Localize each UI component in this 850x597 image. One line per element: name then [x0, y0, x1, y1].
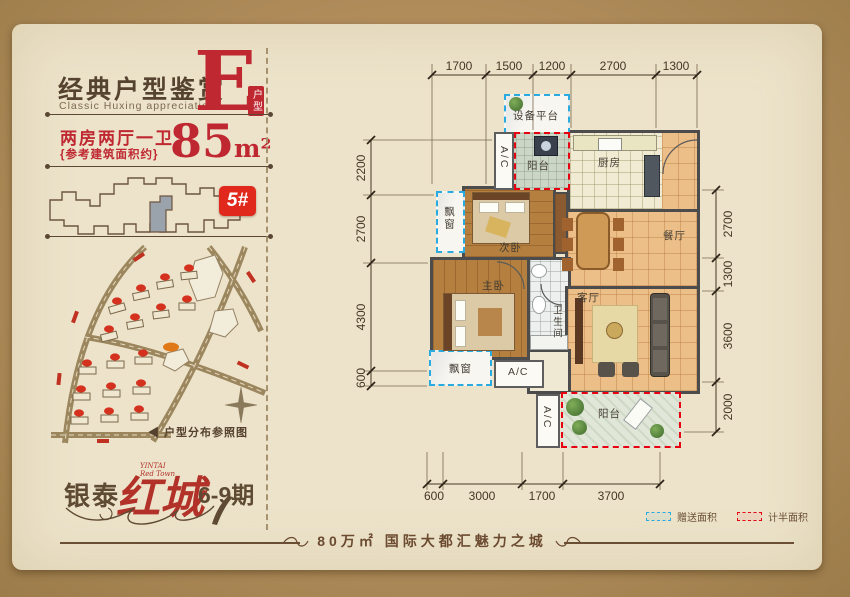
label-dining: 餐厅	[663, 228, 686, 243]
label-ac-right: A/C	[541, 406, 553, 430]
ottoman	[622, 362, 639, 377]
kitchen-counter	[573, 135, 657, 151]
area-figure: 85m²	[170, 118, 271, 164]
label-bay-window-side: 飘窗	[442, 206, 457, 231]
compass-icon	[225, 387, 257, 423]
map-caption-text: 户型分布参照图	[164, 427, 248, 439]
highlighted-unit-shape	[150, 196, 172, 232]
room-entry	[662, 130, 700, 212]
label-equipment-platform: 设备平台	[513, 108, 559, 123]
toilet	[532, 296, 546, 314]
divider	[46, 236, 272, 237]
legend-gift-swatch	[646, 512, 671, 521]
flyer-card: 经典户型鉴赏 Classic Huxing appreciation E 户型 …	[12, 24, 822, 570]
divider	[46, 166, 272, 167]
area-value: 85	[170, 114, 234, 168]
bottom-rule-left	[60, 542, 300, 544]
logo-flourish-icon	[60, 494, 260, 530]
dining-table	[576, 212, 610, 270]
plant-icon	[572, 420, 587, 435]
label-living: 客厅	[577, 290, 600, 305]
bottom-rule-right	[564, 542, 794, 544]
building-outline-path	[50, 178, 240, 234]
label-ac-bottom: A/C	[508, 366, 529, 378]
label-balcony-bottom: 阳台	[598, 406, 621, 421]
area-note: {参考建筑面积约}	[60, 146, 158, 162]
sink	[598, 138, 622, 151]
label-ac-top: A/C	[498, 146, 510, 170]
sofa	[650, 293, 670, 377]
ottoman	[598, 362, 615, 377]
bed-master	[443, 293, 515, 351]
label-bathroom: 卫生间	[549, 305, 563, 340]
label-master: 主卧	[482, 278, 505, 293]
unit-type-tag: 户型	[248, 86, 264, 116]
legend-half-label: 计半面积	[768, 509, 808, 524]
map-caption-arrow-icon: ◀	[148, 427, 160, 439]
panel-divider	[266, 48, 268, 530]
page-subtitle: Classic Huxing appreciation	[59, 100, 216, 112]
chair	[613, 218, 624, 231]
legend-gift-label: 赠送面积	[677, 509, 717, 524]
map-highlight-badge	[163, 343, 179, 352]
label-balcony-top: 阳台	[527, 158, 550, 173]
label-kitchen: 厨房	[598, 155, 621, 170]
chair	[562, 238, 573, 251]
chair	[613, 258, 624, 271]
chair	[562, 258, 573, 271]
site-map	[45, 245, 273, 445]
building-number-badge: 5#	[219, 186, 256, 216]
flyer-root: { "card": { "header": { "title": "经典户型鉴赏…	[0, 0, 850, 597]
chair	[562, 218, 573, 231]
flourish-right-icon	[555, 535, 581, 547]
plant-icon	[650, 424, 664, 438]
legend: 赠送面积 计半面积	[646, 509, 808, 524]
stove	[644, 155, 660, 197]
quill-pen-icon	[212, 496, 233, 525]
bed-secondary	[472, 192, 530, 244]
label-bay-window-bottom: 飘窗	[449, 361, 472, 376]
bath-sink	[531, 264, 547, 278]
tagline-row: 80万㎡ 国际大都汇魅力之城	[280, 531, 584, 551]
washing-machine	[534, 136, 558, 156]
map-caption: ◀ 户型分布参照图	[148, 424, 248, 440]
flourish-left-icon	[283, 535, 309, 547]
plant-icon	[566, 398, 584, 416]
chair	[613, 238, 624, 251]
tagline-text: 80万㎡ 国际大都汇魅力之城	[317, 531, 546, 551]
divider	[46, 114, 272, 115]
tv-cabinet	[575, 298, 583, 364]
legend-half-swatch	[737, 512, 762, 521]
label-bedroom2: 次卧	[499, 240, 522, 255]
coffee-table	[606, 322, 623, 339]
